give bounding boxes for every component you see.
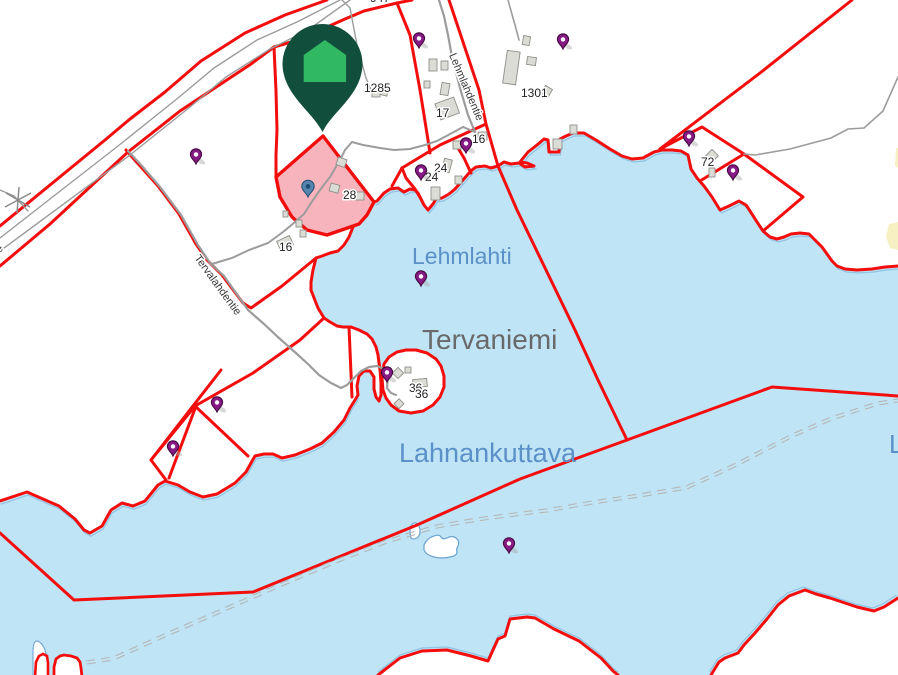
svg-text:Tervaniemi: Tervaniemi	[422, 324, 557, 355]
svg-text:La: La	[889, 429, 898, 459]
svg-text:1285: 1285	[364, 81, 391, 95]
svg-text:1301: 1301	[521, 86, 548, 100]
svg-text:16: 16	[472, 132, 486, 146]
svg-text:72: 72	[701, 155, 715, 169]
svg-text:947: 947	[370, 0, 390, 5]
svg-text:28: 28	[343, 188, 357, 202]
svg-text:16: 16	[279, 240, 293, 254]
svg-text:17: 17	[436, 106, 450, 120]
svg-text:Lahnankuttava: Lahnankuttava	[399, 438, 577, 468]
svg-text:Lehmlahti: Lehmlahti	[412, 243, 512, 269]
svg-text:36: 36	[415, 387, 429, 401]
